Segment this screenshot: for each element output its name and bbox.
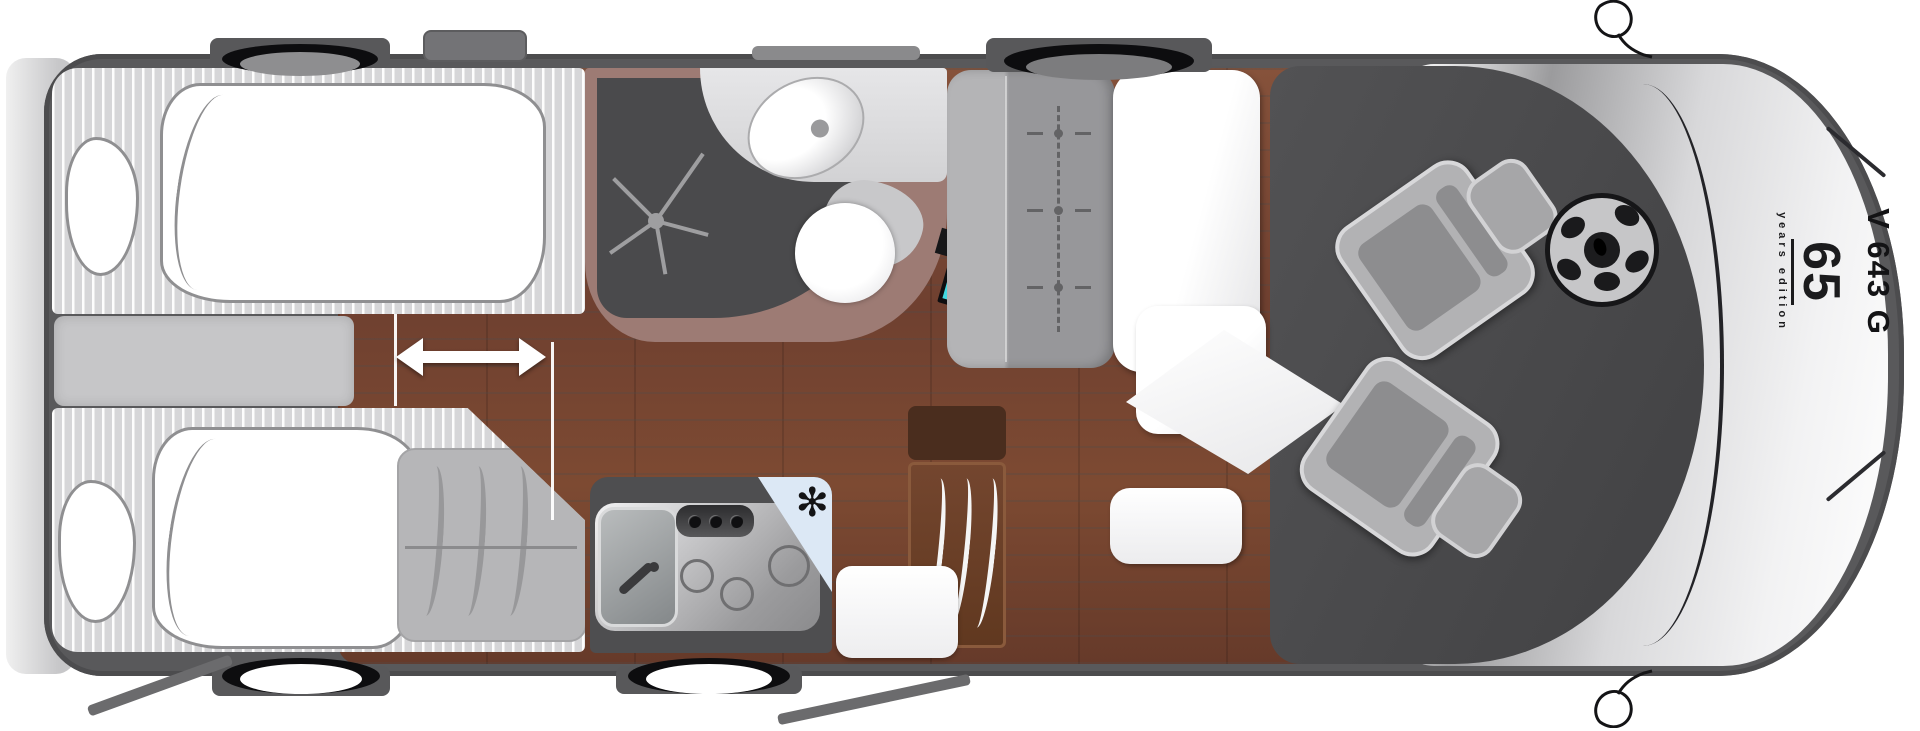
sideboard-top	[908, 406, 1006, 460]
stove-knob-panel	[676, 505, 754, 537]
shower-drain-icon	[596, 161, 716, 281]
wheel-spoke-gap	[1557, 212, 1589, 242]
drain-center	[648, 213, 664, 229]
drain-ray	[654, 153, 704, 222]
wheel-arch	[1026, 54, 1172, 80]
clothes-icon	[456, 465, 490, 616]
wheel-arch	[240, 664, 362, 694]
edition-number: 65	[1798, 241, 1845, 303]
roof-vent	[423, 30, 527, 62]
steering-wheel-icon	[1545, 193, 1659, 307]
sliding-door-arrow-icon	[396, 338, 546, 376]
stove-knob	[688, 515, 701, 528]
drawer-slat	[966, 477, 1003, 628]
arrow-head-left	[396, 338, 423, 376]
wheel-bottom-front	[616, 658, 802, 700]
faucet-base	[649, 562, 659, 572]
shelf-dashed-line	[1057, 106, 1060, 332]
shelf-mark	[1075, 132, 1091, 135]
shelf-dot	[1054, 283, 1063, 292]
wheel-spoke-gap	[1553, 254, 1585, 284]
shelf-dot	[1054, 206, 1063, 215]
entry-step-line-door	[777, 674, 971, 726]
windshield-line	[1562, 84, 1724, 646]
shelf-mark	[1075, 286, 1091, 289]
shelf-dot	[1054, 129, 1063, 138]
side-mirror-icon	[1584, 666, 1664, 728]
wheel-spoke-gap	[1611, 201, 1643, 230]
cabinet-divider	[1005, 76, 1007, 362]
clothes-icon	[414, 465, 448, 616]
toilet-bowl	[795, 203, 895, 303]
shelf-mark	[1027, 209, 1043, 212]
stove-burner	[768, 545, 810, 587]
sink-drain	[808, 116, 832, 140]
snowflake-icon: ✻	[795, 483, 829, 523]
bathroom	[585, 68, 947, 342]
duvet-fold-line	[164, 90, 258, 294]
bed-top	[52, 68, 585, 314]
side-seat	[1110, 488, 1242, 564]
side-mirror-icon	[1584, 0, 1664, 62]
pillow	[65, 137, 139, 276]
shelf-mark	[1027, 286, 1043, 289]
wheel-bottom-rear	[212, 658, 390, 702]
stove-burner	[720, 577, 754, 611]
bed-bottom	[52, 408, 585, 652]
arrow-shaft	[421, 351, 521, 363]
between-beds-cabinet	[54, 316, 354, 406]
edition-caption: years edition	[1776, 212, 1788, 332]
clothes-icon	[498, 465, 532, 616]
stove-knob	[709, 515, 722, 528]
motorhome-floorplan: 65 years edition V 643 G	[0, 0, 1920, 731]
wheel-spoke-gap	[1594, 272, 1620, 291]
wheel-top-rear	[210, 32, 390, 74]
duvet	[152, 427, 419, 649]
shelf-mark	[1075, 209, 1091, 212]
logo-divider	[1791, 239, 1794, 305]
shelf-cabinet	[947, 70, 1115, 368]
entry-door	[836, 566, 958, 658]
awning-rail	[752, 46, 920, 60]
duvet	[160, 83, 546, 303]
kitchen-sink	[598, 507, 678, 627]
kitchen-block: ✻	[590, 477, 832, 653]
partition-line	[551, 342, 554, 520]
stove-burner	[680, 559, 714, 593]
wheel-spoke-gap	[1621, 246, 1653, 277]
wardrobe-rail	[405, 546, 577, 549]
shelf-mark	[1027, 132, 1043, 135]
duvet-fold-line	[155, 434, 249, 640]
pillow	[58, 480, 136, 623]
wheel-top-front	[986, 30, 1212, 78]
arrow-head-right	[519, 338, 546, 376]
model-code: V 643 G	[1856, 189, 1900, 355]
stove-knob	[730, 515, 743, 528]
wheel-arch	[240, 52, 360, 76]
wheel-arch	[646, 664, 772, 694]
